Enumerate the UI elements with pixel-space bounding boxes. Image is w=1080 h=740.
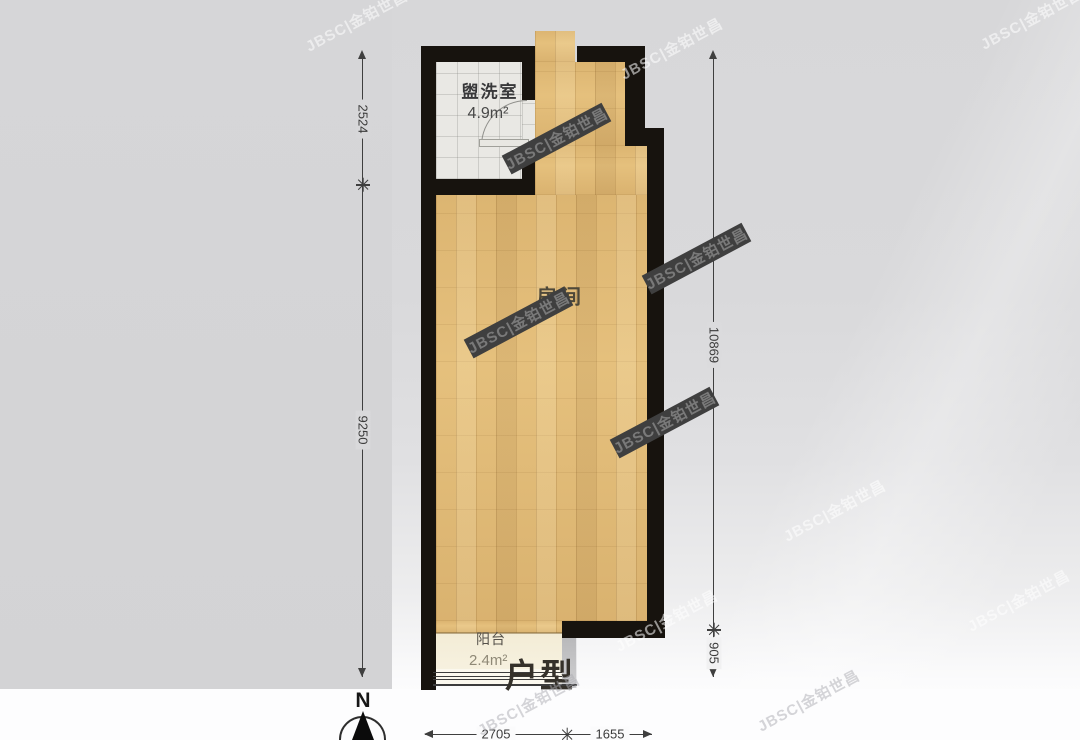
compass-north-label: N xyxy=(355,689,370,713)
wall-top-washroom xyxy=(421,46,535,62)
wall-right-jog xyxy=(625,128,664,146)
wall-left xyxy=(421,46,436,690)
dimension-line-left xyxy=(362,53,363,677)
dimension-arrow-left xyxy=(424,730,433,738)
dimension-arrow-up xyxy=(358,50,366,59)
dimension-break-star xyxy=(356,178,370,192)
wall-washroom-bottom xyxy=(421,179,535,195)
dimension-left-bottom: 9250 xyxy=(356,411,371,450)
background-left-panel xyxy=(0,0,392,689)
dimension-right-top: 10869 xyxy=(707,322,722,368)
compass-needle-icon xyxy=(352,711,374,740)
wall-right-main xyxy=(647,146,664,638)
dimension-break-star xyxy=(707,623,721,637)
washroom-label: 盥洗室 xyxy=(462,78,519,103)
balcony-label: 阳台 xyxy=(476,629,506,649)
background-light-streak xyxy=(700,0,1080,740)
dimension-arrow-right xyxy=(643,730,652,738)
dimension-arrow-up xyxy=(709,50,717,59)
washroom-area-label: 4.9m² xyxy=(468,105,509,123)
entry-opening-floor xyxy=(535,31,575,62)
main-room-floor-mid-strip xyxy=(535,146,647,195)
main-room-floor xyxy=(436,195,647,621)
dimension-left-top: 2524 xyxy=(356,100,371,139)
dimension-arrow-down xyxy=(709,668,717,677)
floorplan-canvas: 盥洗室 4.9m² 房间 阳台 2.4m² 户型 2524 9250 10869… xyxy=(0,0,1080,740)
balcony-area-label: 2.4m² xyxy=(469,652,507,669)
dimension-bottom-right: 1655 xyxy=(591,727,630,740)
dimension-break-star xyxy=(560,728,574,740)
dimension-right-bottom: 905 xyxy=(707,637,722,669)
wall-washroom-right-upper xyxy=(522,46,535,100)
dimension-arrow-down xyxy=(358,668,366,677)
